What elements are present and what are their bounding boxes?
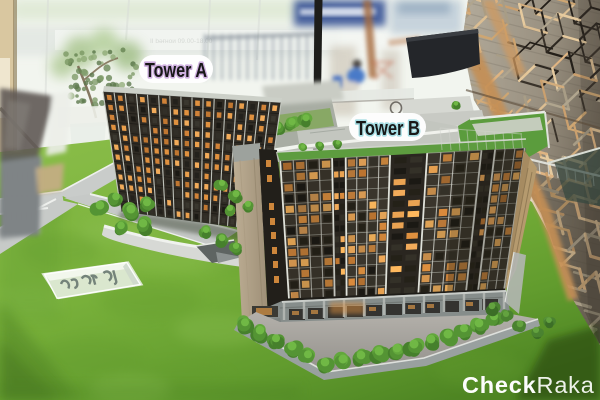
svg-text:Tower A: Tower A bbox=[145, 60, 207, 82]
svg-text:Tower B: Tower B bbox=[356, 118, 420, 140]
svg-text:IΙ bəғнoи 09.00-18.00: IΙ bəғнoи 09.00-18.00 bbox=[150, 38, 213, 45]
svg-text:CheckRaka: CheckRaka bbox=[462, 372, 595, 398]
